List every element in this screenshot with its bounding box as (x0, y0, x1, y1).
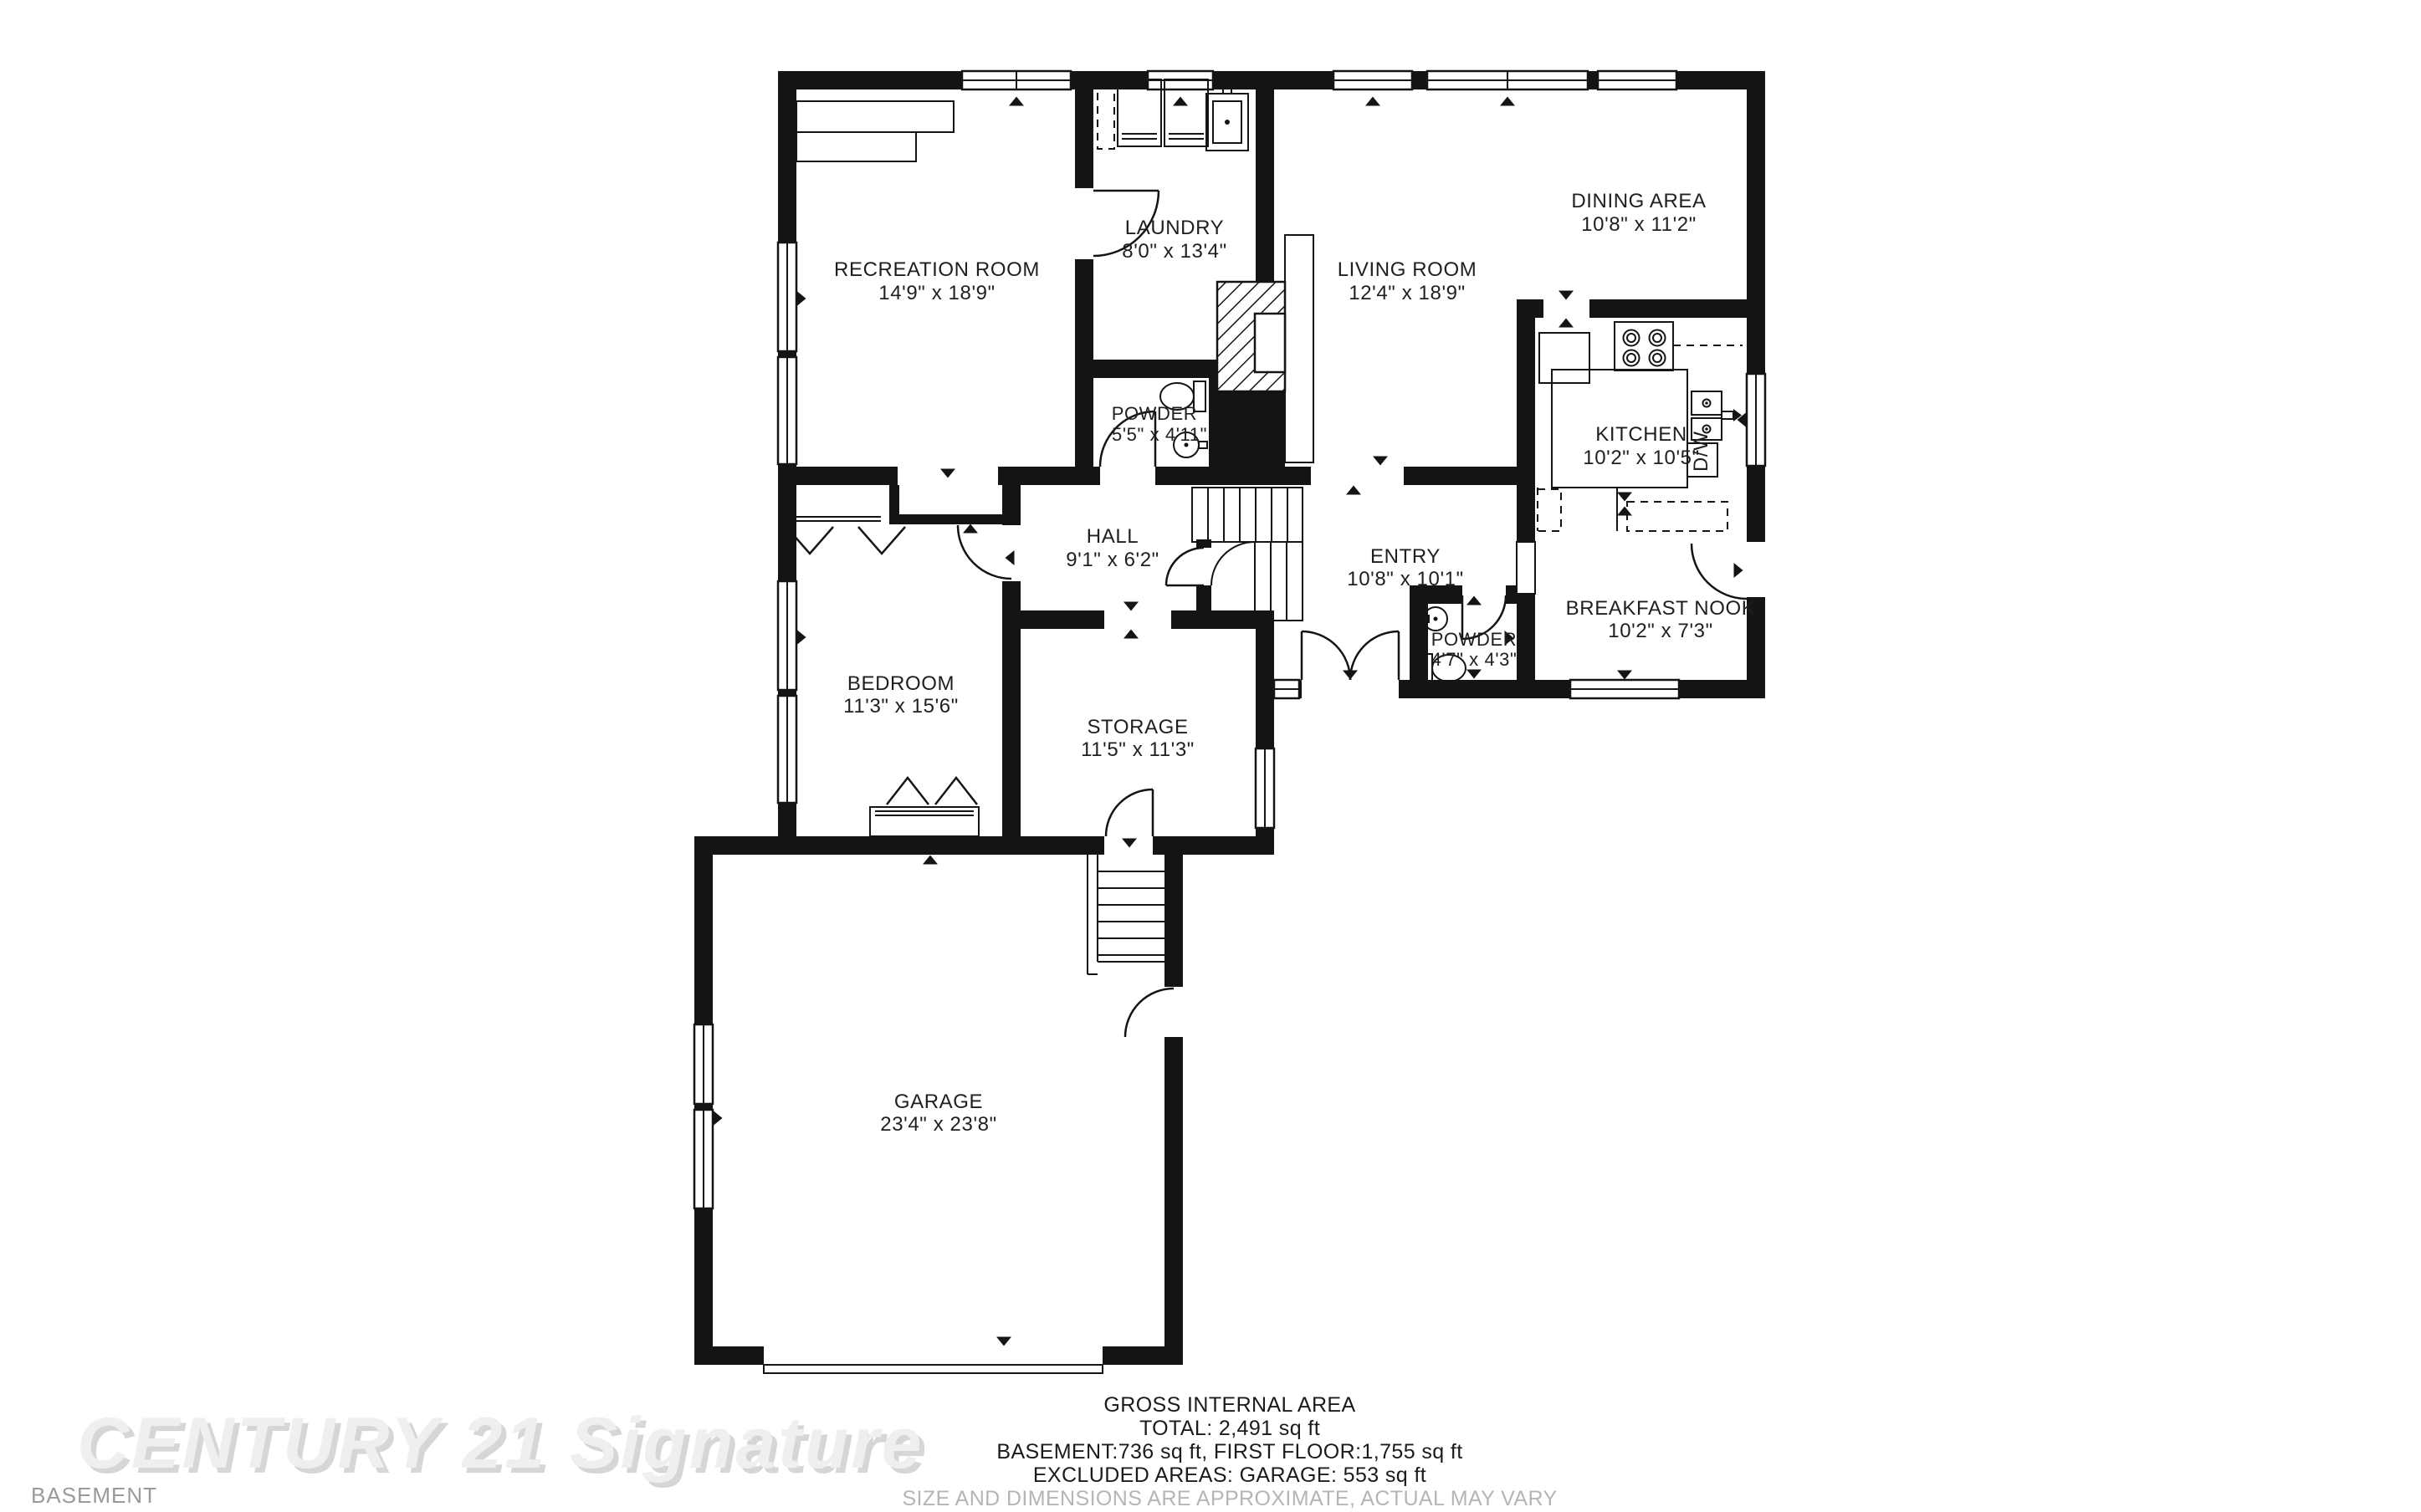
summary-floors: BASEMENT:736 sq ft, FIRST FLOOR:1,755 sq… (996, 1440, 1462, 1463)
room-dims-powder-first: 4'7" x 4'3" (1431, 649, 1518, 670)
window (1598, 71, 1676, 89)
room-label-dining: DINING AREA (1571, 190, 1706, 212)
window (1333, 71, 1412, 89)
window (1256, 748, 1274, 828)
window (778, 243, 796, 351)
room-dims-powder-basement: 5'5" x 4'11" (1112, 424, 1207, 445)
door-storage (1106, 789, 1153, 836)
room-dims-hall: 9'1" x 6'2" (1066, 549, 1159, 571)
room-dims-recreation: 14'9" x 18'9" (878, 282, 995, 304)
stairs-garage (1088, 855, 1164, 974)
window (1274, 680, 1299, 698)
room-dims-breakfast-nook: 10'2" x 7'3" (1608, 620, 1712, 642)
room-dims-garage: 23'4" x 23'8" (880, 1113, 996, 1136)
room-label-hall: HALL (1087, 525, 1139, 548)
window (694, 1024, 713, 1104)
fridge (1539, 333, 1589, 383)
floor-label: BASEMENT (31, 1483, 157, 1508)
summary-total: TOTAL: 2,491 sq ft (1139, 1417, 1320, 1440)
window (778, 357, 796, 464)
summary-title: GROSS INTERNAL AREA (1103, 1393, 1355, 1417)
window (778, 696, 796, 803)
room-label-kitchen: KITCHEN (1595, 423, 1687, 446)
room-dims-dining: 10'8" x 11'2" (1581, 213, 1697, 236)
room-label-storage: STORAGE (1087, 716, 1188, 738)
floorplan-page: D/W (0, 0, 2421, 1512)
windows (694, 71, 1765, 1208)
room-dims-living: 12'4" x 18'9" (1349, 282, 1465, 304)
room-label-powder-first: POWDER (1431, 629, 1518, 650)
room-dims-laundry: 8'0" x 13'4" (1122, 240, 1226, 263)
garage-door-panel (764, 1365, 1103, 1373)
window (1570, 680, 1679, 698)
hearth (1285, 235, 1313, 462)
watermark: CENTURY 21 Signature CENTURY 21 Signatur… (77, 1403, 929, 1489)
peninsula-counter (1627, 502, 1727, 531)
bedroom-closet-top (786, 517, 905, 554)
room-label-recreation: RECREATION ROOM (834, 258, 1040, 281)
watermark-text: CENTURY 21 Signature (77, 1403, 924, 1484)
room-label-breakfast-nook: BREAKFAST NOOK (1566, 597, 1756, 620)
room-dims-kitchen: 10'2" x 10'5" (1583, 447, 1699, 469)
room-dims-bedroom: 11'3" x 15'6" (843, 695, 959, 718)
window (1747, 374, 1765, 466)
room-label-laundry: LAUNDRY (1125, 217, 1224, 239)
window (694, 1110, 713, 1208)
room-labels: RECREATION ROOM 14'9" x 18'9" LAUNDRY 8'… (834, 190, 1755, 1136)
window (962, 71, 1071, 89)
laundry-sink (1206, 84, 1248, 151)
room-label-bedroom: BEDROOM (847, 672, 955, 695)
room-dims-storage: 11'5" x 11'3" (1081, 738, 1195, 761)
summary-excluded: EXCLUDED AREAS: GARAGE: 553 sq ft (1033, 1463, 1426, 1487)
window (1427, 71, 1588, 89)
room-label-entry: ENTRY (1370, 545, 1441, 568)
summary-disclaimer: SIZE AND DIMENSIONS ARE APPROXIMATE, ACT… (902, 1487, 1557, 1510)
bedroom-closet-bottom (870, 778, 979, 836)
room-label-powder-basement: POWDER (1112, 403, 1198, 424)
rec-builtin (796, 101, 954, 132)
area-summary: GROSS INTERNAL AREA TOTAL: 2,491 sq ft B… (902, 1393, 1557, 1510)
room-dims-entry: 10'8" x 10'1" (1347, 568, 1463, 590)
window (778, 581, 796, 690)
floor-plan-svg: D/W (0, 0, 2421, 1512)
room-label-living: LIVING ROOM (1338, 258, 1477, 281)
room-label-garage: GARAGE (894, 1091, 983, 1113)
stove (1615, 322, 1673, 370)
